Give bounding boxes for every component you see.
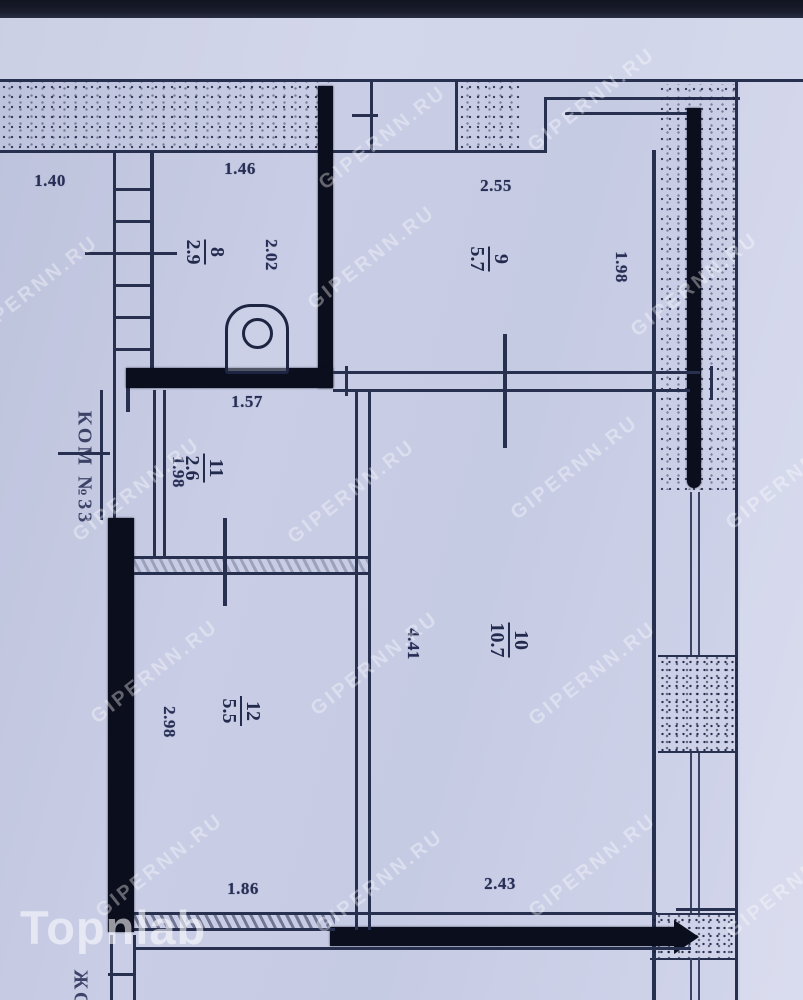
wall bbox=[100, 390, 103, 520]
wall bbox=[333, 389, 690, 392]
site-watermark: GIPERNN.RU bbox=[307, 607, 444, 721]
toilet-bowl-icon bbox=[242, 318, 273, 349]
dimension-label: 1.40 bbox=[34, 171, 66, 191]
paper-highlight bbox=[0, 18, 803, 80]
wall bbox=[113, 150, 116, 520]
dimension-label: 1.57 bbox=[231, 392, 263, 412]
room-area: 10.7 bbox=[484, 623, 508, 658]
wall-tick bbox=[113, 284, 154, 287]
site-watermark: GIPERNN.RU bbox=[507, 411, 644, 525]
site-watermark: GIPERNN.RU bbox=[525, 809, 662, 923]
paper-highlight bbox=[740, 80, 803, 1000]
room-number: 12 bbox=[240, 696, 264, 726]
wall-thick bbox=[108, 518, 134, 932]
wall bbox=[0, 150, 335, 153]
room-number: 10 bbox=[508, 623, 532, 658]
wall bbox=[652, 150, 656, 1000]
dimension-label: 2.98 bbox=[159, 706, 179, 738]
wall-tick bbox=[108, 973, 136, 976]
dimension-label: 2.55 bbox=[480, 176, 512, 196]
wall-hatch bbox=[0, 82, 332, 151]
opening-cross-mark bbox=[503, 334, 507, 448]
photo-edge-band bbox=[0, 0, 803, 18]
room-number: 11 bbox=[203, 454, 227, 483]
window-lines bbox=[698, 753, 700, 913]
site-watermark: GIPERNN.RU bbox=[284, 435, 421, 549]
wall-tick bbox=[345, 366, 348, 396]
room-label-12: 12 5.5 bbox=[216, 696, 264, 726]
window-lines bbox=[698, 492, 700, 657]
room-number: 8 bbox=[204, 240, 228, 265]
wall-tick bbox=[113, 316, 154, 319]
wall-tick bbox=[113, 188, 154, 191]
site-watermark: GIPERNN.RU bbox=[315, 81, 452, 195]
wall bbox=[676, 908, 737, 911]
wall bbox=[134, 572, 370, 575]
wall-tick bbox=[113, 348, 154, 351]
wall-thick bbox=[318, 86, 333, 388]
dimension-label: 1.46 bbox=[224, 159, 256, 179]
wall-hatch bbox=[458, 82, 520, 151]
site-watermark: GIPERNN.RU bbox=[525, 617, 662, 731]
dimension-label: 1.86 bbox=[227, 879, 259, 899]
room-label-9: 9 5.7 bbox=[464, 247, 512, 272]
site-watermark: GIPERNN.RU bbox=[722, 829, 803, 943]
site-watermark: GIPERNN.RU bbox=[312, 825, 449, 939]
window-lines bbox=[690, 492, 692, 657]
wall bbox=[355, 390, 358, 930]
wall-tick bbox=[352, 114, 378, 117]
site-watermark: GIPERNN.RU bbox=[0, 231, 103, 345]
wall bbox=[134, 556, 370, 559]
opening-cross-mark bbox=[223, 518, 227, 606]
wall bbox=[126, 388, 130, 412]
wall bbox=[135, 947, 691, 950]
wall-hatch bbox=[658, 655, 737, 753]
wall-thick bbox=[330, 927, 678, 946]
room-label-8: 8 2.9 bbox=[180, 240, 228, 265]
room-area: 5.5 bbox=[216, 696, 240, 726]
room-label-10: 10 10.7 bbox=[484, 623, 532, 658]
block-number-label: КОМ №33 bbox=[73, 411, 96, 526]
wall bbox=[150, 152, 154, 374]
wall-tick bbox=[113, 220, 154, 223]
window-lines bbox=[690, 753, 692, 913]
topnlab-watermark: Topnlab bbox=[20, 900, 206, 955]
floor-plan-photo: 8 2.9 9 5.7 11 2.6 10 10.7 12 5.5 1.40 1… bbox=[0, 0, 803, 1000]
dimension-label: 2.02 bbox=[261, 239, 281, 271]
dimension-label: 2.43 bbox=[484, 874, 516, 894]
wall-tick bbox=[710, 366, 713, 400]
dimension-label: 1.98 bbox=[611, 251, 631, 283]
room-area: 5.7 bbox=[464, 247, 488, 272]
wall bbox=[333, 371, 700, 374]
window-lines bbox=[698, 958, 700, 1000]
room-area: 2.9 bbox=[180, 240, 204, 265]
toilet-icon bbox=[225, 304, 289, 374]
partial-label: ЖО bbox=[69, 970, 92, 1000]
window-lines bbox=[690, 958, 692, 1000]
room-number: 9 bbox=[488, 247, 512, 272]
